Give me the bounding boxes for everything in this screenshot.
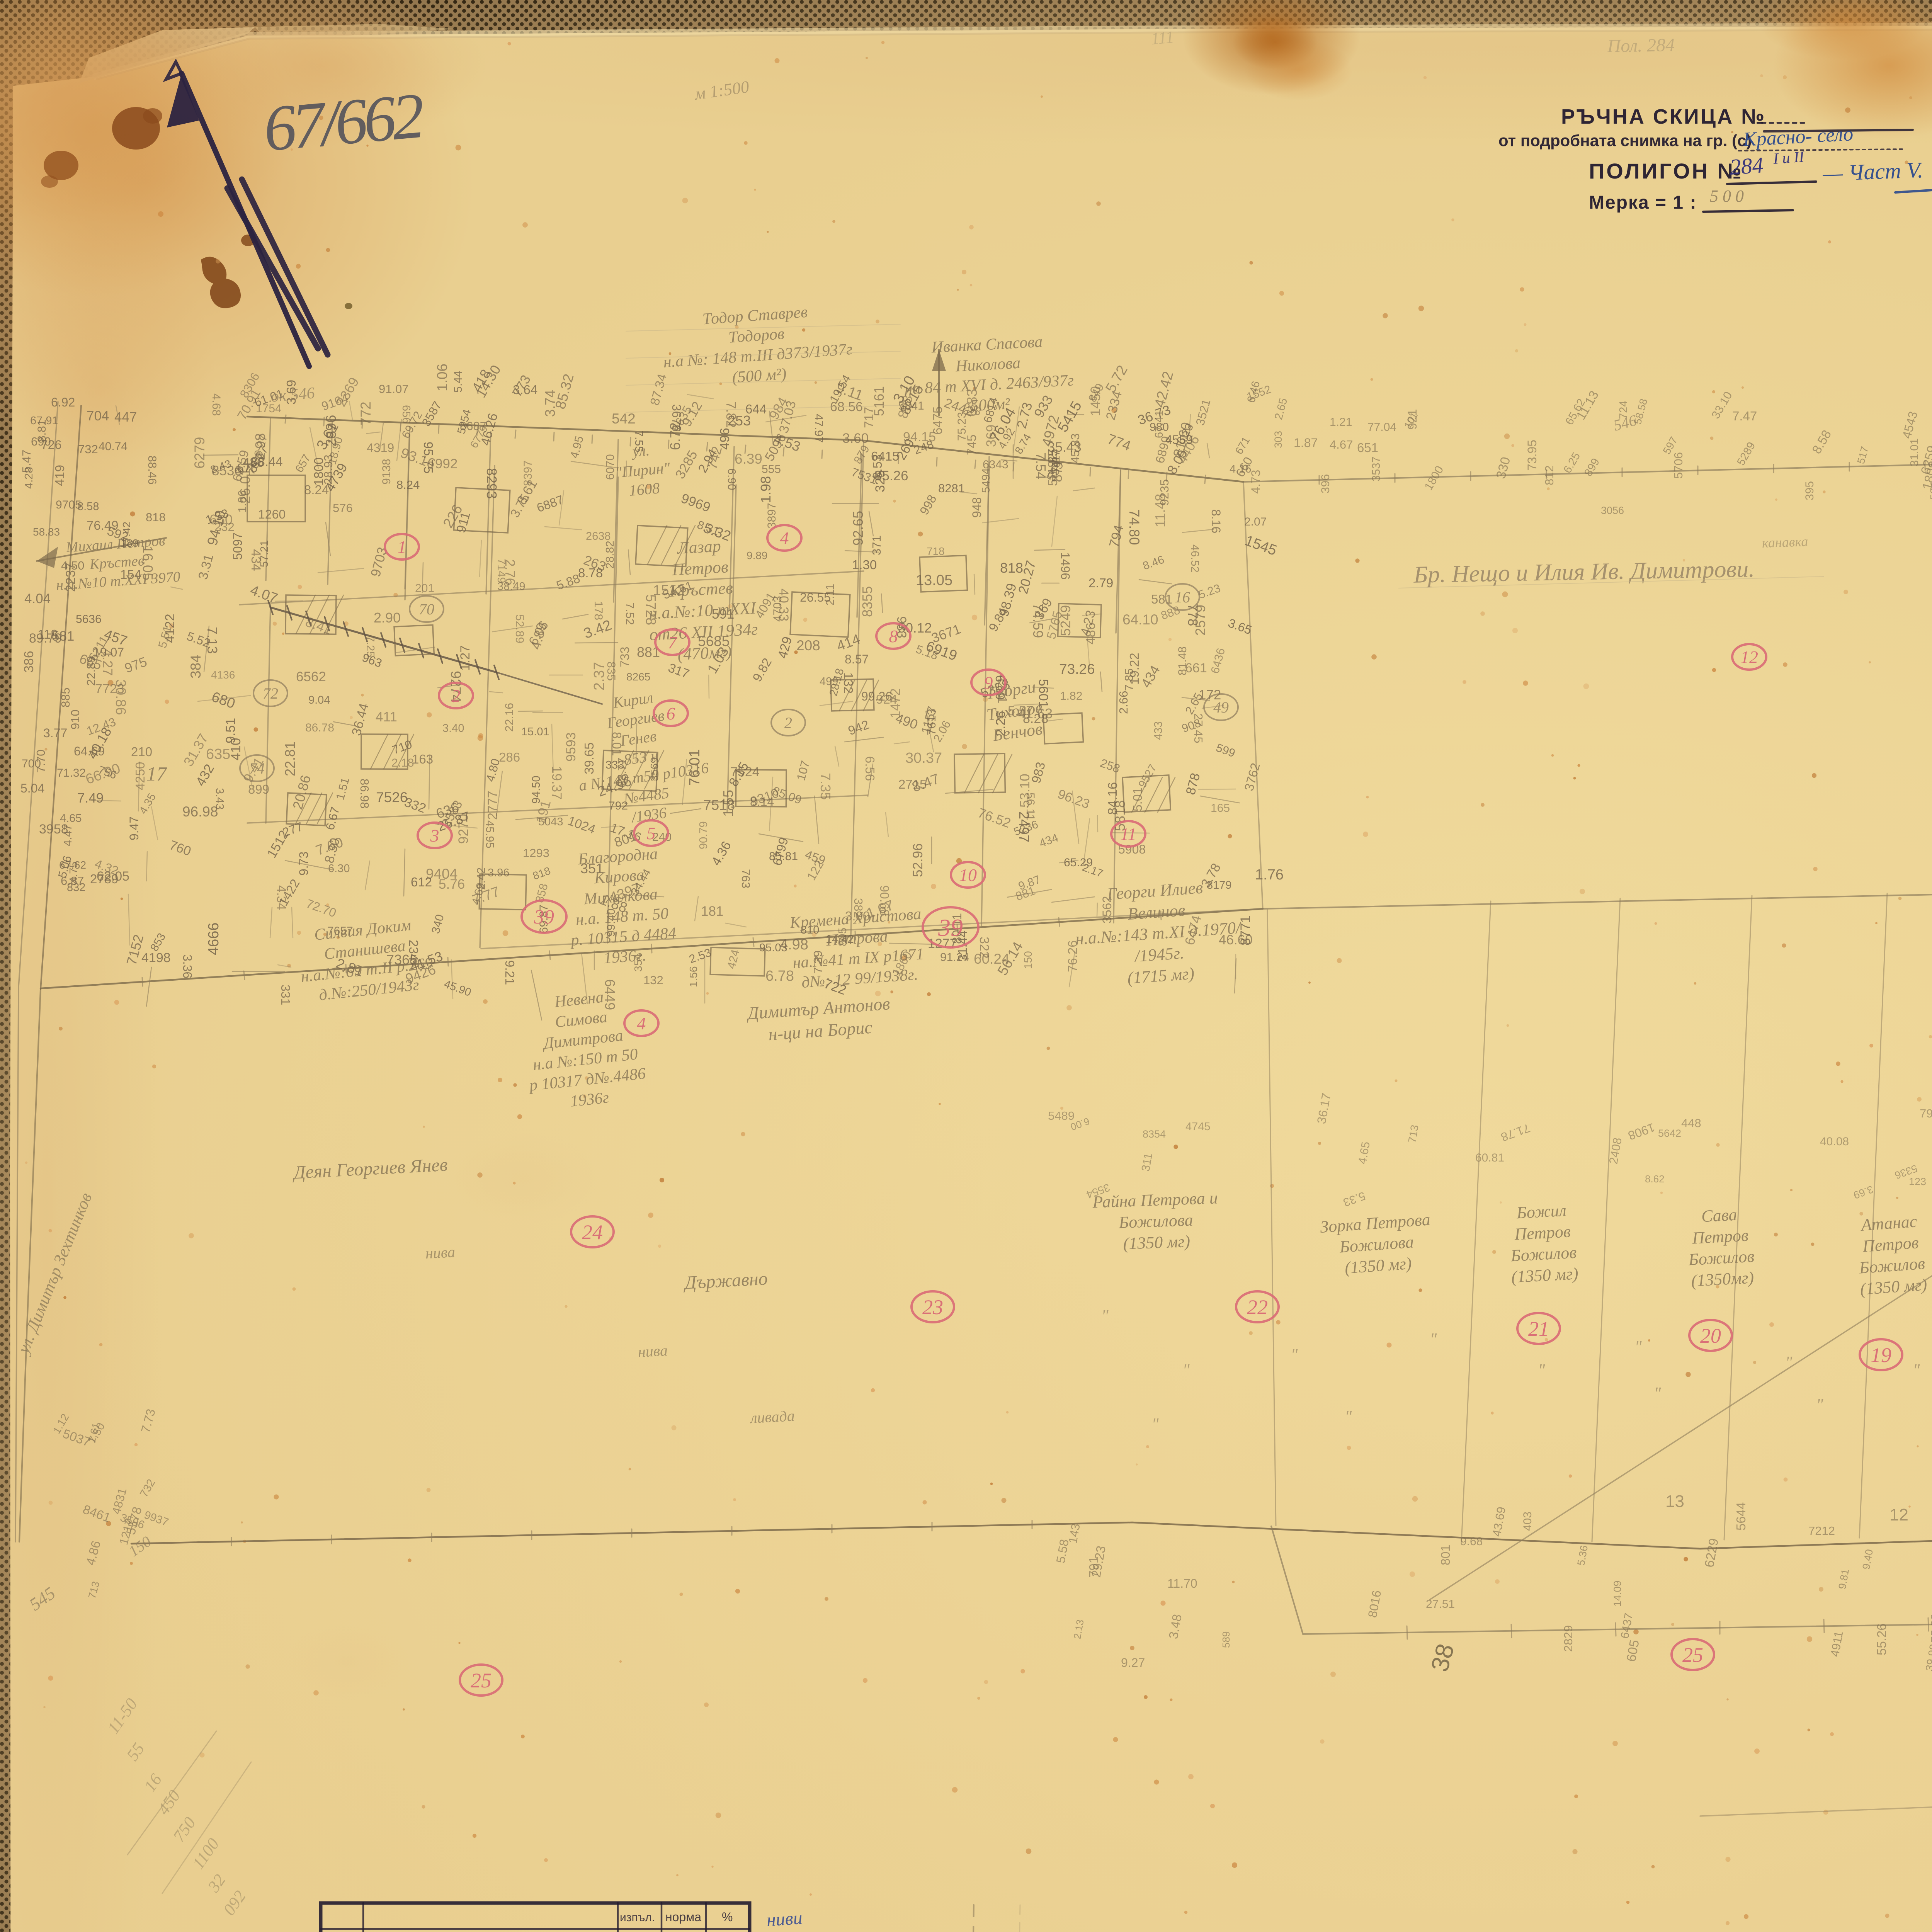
svg-text:56.11: 56.11 [1024,793,1037,821]
svg-text:канавка: канавка [1762,534,1808,551]
svg-text:910: 910 [68,709,82,730]
svg-text:58.82: 58.82 [1046,453,1060,486]
svg-text:": " [1345,1407,1352,1426]
svg-text:58.83: 58.83 [33,526,60,538]
svg-text:57.21: 57.21 [258,540,270,567]
svg-text:2777: 2777 [485,791,500,820]
svg-text:19.37: 19.37 [549,766,564,800]
svg-text:576: 576 [333,501,353,515]
svg-text:84.16: 84.16 [1105,782,1120,815]
svg-text:ниви: ниви [766,1908,803,1930]
svg-text:85.81: 85.81 [769,850,798,863]
svg-text:732: 732 [78,442,98,456]
svg-text:изпъл.: изпъл. [620,1911,655,1924]
svg-text:74.59: 74.59 [1030,603,1046,638]
svg-text:6.56: 6.56 [863,756,877,781]
svg-text:5.44: 5.44 [452,371,464,393]
svg-text:3.64: 3.64 [513,383,537,397]
svg-text:7526: 7526 [376,789,408,805]
svg-text:4.73: 4.73 [1249,470,1263,494]
svg-text:73.95: 73.95 [1525,440,1539,471]
svg-text:73.26: 73.26 [1059,661,1095,677]
svg-text:31.01: 31.01 [1908,438,1921,466]
svg-text:7.52: 7.52 [623,602,636,625]
svg-text:9.47: 9.47 [127,816,141,840]
svg-text:371: 371 [870,535,883,555]
svg-text:386: 386 [22,651,36,673]
svg-text:74.80: 74.80 [1126,509,1142,545]
svg-text:3.43: 3.43 [213,788,226,810]
svg-text:1496: 1496 [1058,552,1072,580]
svg-text:8397: 8397 [522,460,534,486]
svg-text:7.70: 7.70 [34,750,48,773]
svg-text:7212: 7212 [1808,1524,1835,1537]
svg-text:9.89: 9.89 [747,549,768,561]
svg-text:612: 612 [411,875,432,889]
svg-text:": " [1151,1415,1159,1434]
svg-text:111: 111 [1150,27,1175,48]
svg-text:410: 410 [228,738,243,760]
svg-text:1.98: 1.98 [758,476,774,503]
svg-text:17: 17 [146,763,167,785]
svg-text:812: 812 [1543,465,1556,485]
svg-text:4.50: 4.50 [61,559,84,572]
svg-text:2638: 2638 [586,530,611,543]
svg-text:95.03: 95.03 [759,942,787,954]
svg-text:163: 163 [412,752,433,766]
svg-text:1.87: 1.87 [1294,436,1318,450]
svg-text:25: 25 [1682,1643,1703,1667]
svg-text:589: 589 [1220,1631,1232,1648]
svg-text:396: 396 [1319,474,1332,493]
svg-text:19.07: 19.07 [93,645,124,659]
svg-text:9.27: 9.27 [1121,1656,1145,1670]
svg-text:7.49: 7.49 [77,791,104,806]
svg-text:448: 448 [1681,1116,1701,1130]
svg-text:Мерка = 1 :: Мерка = 1 : [1589,192,1697,213]
svg-text:9.21: 9.21 [503,960,517,985]
svg-text:22.16: 22.16 [503,703,516,732]
svg-text:1.82: 1.82 [1060,690,1082,702]
svg-text:67/662: 67/662 [261,80,426,165]
svg-text:5: 5 [647,823,656,843]
svg-text:253: 253 [728,413,751,429]
svg-text:1: 1 [398,537,406,557]
svg-text:2: 2 [452,686,461,706]
svg-text:2.66: 2.66 [1117,691,1130,714]
svg-text:1260: 1260 [258,507,286,521]
svg-text:1800: 1800 [311,457,326,486]
svg-text:818: 818 [146,510,166,524]
svg-text:733: 733 [618,647,632,667]
svg-text:4319: 4319 [367,441,394,455]
svg-text:403: 403 [1521,1512,1534,1531]
svg-text:8.58: 8.58 [77,500,99,513]
svg-text:60.81: 60.81 [1475,1151,1504,1164]
svg-text:1.76: 1.76 [1255,867,1284,883]
svg-text:3.60: 3.60 [842,431,869,446]
svg-text:6279: 6279 [192,437,207,469]
svg-text:62.05: 62.05 [97,869,129,884]
svg-text:%: % [722,1910,733,1924]
svg-text:2: 2 [784,714,792,731]
svg-text:447: 447 [114,410,137,425]
svg-text:94.15: 94.15 [903,430,936,444]
svg-text:8354: 8354 [1143,1128,1166,1140]
svg-text:11.70: 11.70 [1167,1577,1197,1590]
svg-text:89.79: 89.79 [29,631,62,646]
svg-text:333: 333 [605,759,624,771]
svg-text:РЪЧНА СКИЦА №: РЪЧНА СКИЦА № [1561,105,1766,128]
svg-text:5494: 5494 [980,468,992,493]
svg-text:2.18: 2.18 [391,757,414,769]
svg-text:нива: нива [638,1342,668,1361]
svg-text:6562: 6562 [296,669,326,684]
svg-text:1.27: 1.27 [458,645,473,671]
svg-text:16: 16 [1175,588,1190,606]
svg-text:718: 718 [927,545,945,557]
svg-text:123: 123 [1909,1176,1926,1187]
svg-text:45.95: 45.95 [483,820,496,849]
svg-text:8179: 8179 [1207,879,1232,891]
svg-text:181: 181 [701,904,723,919]
svg-text:1.55: 1.55 [720,790,736,817]
svg-text:64.69: 64.69 [74,744,105,758]
svg-text:4250: 4250 [133,762,147,790]
svg-text:76.49: 76.49 [87,518,119,532]
svg-text:992: 992 [435,456,457,471]
svg-text:27.51: 27.51 [1426,1598,1455,1611]
svg-text:4.68: 4.68 [210,393,223,416]
svg-text:4: 4 [637,1014,646,1033]
svg-text:45.83: 45.83 [1068,433,1082,463]
svg-text:208: 208 [796,638,820,653]
svg-text:7723: 7723 [95,682,124,696]
svg-text:150: 150 [1022,951,1034,969]
svg-text:I и II: I и II [1772,148,1805,167]
svg-text:75.33: 75.33 [1929,1614,1932,1643]
svg-text:2579: 2579 [1192,605,1208,636]
svg-text:19: 19 [1871,1344,1891,1367]
svg-text:": " [1182,1361,1190,1379]
svg-text:395: 395 [1803,481,1816,500]
svg-text:67.41: 67.41 [1153,410,1165,438]
svg-text:948: 948 [970,497,984,518]
svg-text:24: 24 [582,1221,603,1244]
svg-text:39: 39 [534,906,554,928]
svg-text:2.90: 2.90 [374,610,401,626]
svg-text:2896: 2896 [323,415,339,447]
svg-text:": " [1291,1345,1298,1364]
svg-text:704: 704 [87,408,109,423]
svg-text:74: 74 [249,760,265,777]
svg-text:8293: 8293 [484,468,500,499]
svg-text:5489: 5489 [1048,1109,1075,1122]
svg-text:885: 885 [59,687,72,707]
svg-text:70: 70 [419,600,434,618]
svg-text:542: 542 [612,411,636,427]
svg-text:5.01: 5.01 [1131,787,1145,811]
svg-text:3.74: 3.74 [542,390,558,417]
svg-text:5 0 0: 5 0 0 [1710,187,1744,206]
svg-text:3056: 3056 [1601,505,1624,516]
svg-text:5908: 5908 [1118,842,1146,856]
svg-text:86.98: 86.98 [358,779,371,809]
svg-text:4198: 4198 [141,951,171,965]
svg-text:96.98: 96.98 [182,804,218,820]
svg-text:81.48: 81.48 [1176,646,1189,675]
svg-text:7910: 7910 [1920,1107,1932,1120]
svg-text:9138: 9138 [380,459,393,485]
svg-text:40.33: 40.33 [776,588,791,621]
svg-text:9.73: 9.73 [297,852,311,876]
svg-text:8281: 8281 [938,481,965,495]
svg-text:30.37: 30.37 [905,750,942,766]
svg-text:92.65: 92.65 [850,511,866,546]
svg-text:419: 419 [53,465,67,486]
svg-text:64.10: 64.10 [1122,612,1158,628]
svg-text:555: 555 [762,463,781,476]
svg-text:9235: 9235 [1158,479,1171,506]
svg-text:": " [1913,1361,1920,1379]
svg-text:9.04: 9.04 [308,694,330,706]
svg-text:25: 25 [471,1669,492,1692]
svg-text:47.97: 47.97 [812,414,825,443]
svg-text:": " [1538,1361,1545,1379]
svg-text:651: 651 [1357,440,1378,455]
svg-text:763: 763 [739,869,752,888]
svg-text:286: 286 [499,750,520,764]
svg-text:210: 210 [131,745,152,759]
svg-text:21: 21 [1528,1317,1549,1340]
svg-text:832: 832 [67,881,85,894]
svg-text:75.23: 75.23 [956,412,968,441]
svg-text:5097: 5097 [231,532,245,560]
svg-text:924: 924 [876,692,897,706]
svg-text:7.35: 7.35 [818,773,833,800]
svg-text:67.91: 67.91 [30,415,58,427]
svg-text:10: 10 [959,865,977,885]
svg-text:9: 9 [984,673,993,692]
svg-text:12: 12 [1740,647,1758,667]
svg-text:55.26: 55.26 [1874,1623,1889,1655]
svg-text:303: 303 [1272,431,1284,448]
svg-text:— Част V.: — Част V. [1822,157,1923,186]
svg-text:635: 635 [206,746,230,762]
svg-text:8355: 8355 [859,586,875,617]
svg-text:8.24: 8.24 [396,478,420,492]
svg-text:": " [1785,1353,1793,1372]
svg-text:46.52: 46.52 [1189,544,1201,573]
svg-text:6.30: 6.30 [328,862,350,875]
svg-text:433: 433 [1152,721,1165,740]
svg-text:2.07: 2.07 [1244,515,1267,528]
svg-text:1.56: 1.56 [687,966,699,988]
svg-text:6415: 6415 [871,449,899,463]
svg-text:384: 384 [188,655,204,679]
svg-text:": " [1101,1306,1109,1325]
svg-text:9593: 9593 [564,732,578,762]
svg-text:331: 331 [279,985,293,1005]
svg-text:95.75: 95.75 [421,442,435,474]
svg-text:22.81: 22.81 [282,742,298,776]
svg-text:6.92: 6.92 [51,395,75,409]
svg-text:2.37: 2.37 [591,662,607,690]
svg-text:52.89: 52.89 [513,614,526,643]
svg-text:201: 201 [415,582,434,595]
svg-text:8: 8 [889,626,898,646]
svg-text:": " [1634,1337,1642,1356]
svg-text:5.04: 5.04 [20,781,44,795]
svg-text:8265: 8265 [626,671,650,683]
svg-text:72: 72 [263,685,278,702]
svg-text:2.76: 2.76 [502,559,517,585]
svg-text:5642: 5642 [1658,1128,1681,1139]
svg-text:496: 496 [718,428,732,450]
svg-text:9.68: 9.68 [1460,1535,1483,1548]
svg-text:4136: 4136 [211,669,235,681]
svg-text:284: 284 [1729,152,1764,180]
svg-text:49: 49 [1213,699,1229,716]
svg-text:": " [1654,1384,1661,1403]
svg-text:3.40: 3.40 [442,722,464,735]
svg-text:4: 4 [780,528,789,548]
svg-text:4.67: 4.67 [1330,438,1353,451]
svg-text:77.04: 77.04 [1367,421,1396,434]
svg-text:7.25: 7.25 [364,636,376,657]
svg-text:3537: 3537 [1370,456,1383,481]
svg-text:3.36: 3.36 [180,954,194,978]
svg-text:2.79: 2.79 [1088,576,1113,590]
svg-text:39: 39 [938,914,963,941]
svg-text:88.46: 88.46 [146,456,158,485]
svg-text:581: 581 [1151,592,1172,606]
svg-text:2.42: 2.42 [475,867,488,890]
svg-text:6.90: 6.90 [725,468,738,490]
svg-text:8.62: 8.62 [1645,1173,1665,1185]
svg-text:1293: 1293 [523,846,549,860]
svg-text:818: 818 [1000,560,1023,576]
svg-text:3.96: 3.96 [488,867,509,879]
svg-text:": " [1816,1395,1823,1414]
svg-text:369: 369 [984,425,999,447]
svg-text:12: 12 [1889,1505,1908,1524]
svg-text:7.85: 7.85 [1123,668,1136,691]
svg-text:5636: 5636 [76,613,102,626]
svg-text:7: 7 [668,633,678,652]
svg-text:67.62: 67.62 [59,859,86,871]
svg-text:13: 13 [1665,1492,1684,1511]
svg-text:4.04: 4.04 [24,591,51,606]
svg-text:726: 726 [41,438,61,452]
svg-text:772: 772 [358,401,374,425]
svg-text:2829: 2829 [1561,1625,1575,1652]
svg-text:717: 717 [862,407,876,428]
svg-text:39.65: 39.65 [582,742,596,774]
svg-text:8.16: 8.16 [1209,509,1223,533]
svg-text:11: 11 [1120,824,1137,844]
svg-text:7.47: 7.47 [1732,409,1757,423]
svg-text:40.74: 40.74 [99,440,128,453]
svg-text:норма: норма [665,1910,701,1924]
svg-text:411: 411 [376,709,397,724]
svg-text:801: 801 [1439,1545,1452,1565]
svg-text:5706: 5706 [1672,452,1685,479]
svg-text:4666: 4666 [206,922,222,955]
svg-text:2715: 2715 [898,777,927,791]
svg-text:1.21: 1.21 [1330,416,1352,429]
svg-text:14.09: 14.09 [1612,1580,1623,1607]
svg-text:504: 504 [1928,482,1932,500]
svg-text:178: 178 [592,601,605,620]
svg-text:6.78: 6.78 [765,968,794,984]
svg-text:1.30: 1.30 [852,558,877,572]
svg-text:86.78: 86.78 [305,721,334,734]
svg-text:ливада: ливада [749,1407,795,1427]
svg-text:20: 20 [1700,1324,1721,1347]
svg-text:6.39: 6.39 [735,451,762,467]
svg-text:1.06: 1.06 [434,364,450,391]
svg-text:3897: 3897 [765,503,778,529]
svg-text:Пол. 284: Пол. 284 [1607,35,1675,56]
svg-text:52.96: 52.96 [910,843,925,877]
svg-text:22.89: 22.89 [84,656,98,686]
svg-text:40.08: 40.08 [1820,1135,1849,1148]
svg-text:132: 132 [643,973,663,987]
svg-text:71.32: 71.32 [57,767,86,779]
svg-text:": " [1430,1330,1437,1349]
svg-text:22: 22 [1247,1296,1268,1319]
svg-text:4.28: 4.28 [23,467,35,489]
svg-text:3: 3 [430,826,439,845]
svg-text:13.05: 13.05 [916,572,952,588]
svg-text:2.11: 2.11 [824,584,837,605]
svg-text:4.65: 4.65 [60,812,82,825]
svg-text:8.57: 8.57 [845,652,869,666]
svg-text:4745: 4745 [1185,1121,1211,1133]
svg-text:15.01: 15.01 [521,726,549,738]
svg-text:90.79: 90.79 [697,821,710,849]
svg-text:5644: 5644 [1734,1502,1748,1531]
svg-text:6: 6 [667,704,675,723]
svg-text:23: 23 [922,1296,943,1319]
svg-text:165: 165 [1211,802,1230,815]
svg-text:нива: нива [425,1243,456,1262]
svg-text:6.72: 6.72 [667,422,683,450]
svg-text:91.07: 91.07 [379,382,409,396]
svg-text:ПОЛИГОН №: ПОЛИГОН № [1589,159,1743,183]
svg-text:от подробната снимка на гр. (с: от подробната снимка на гр. (с) [1498,131,1752,150]
svg-text:3.77: 3.77 [43,726,67,740]
